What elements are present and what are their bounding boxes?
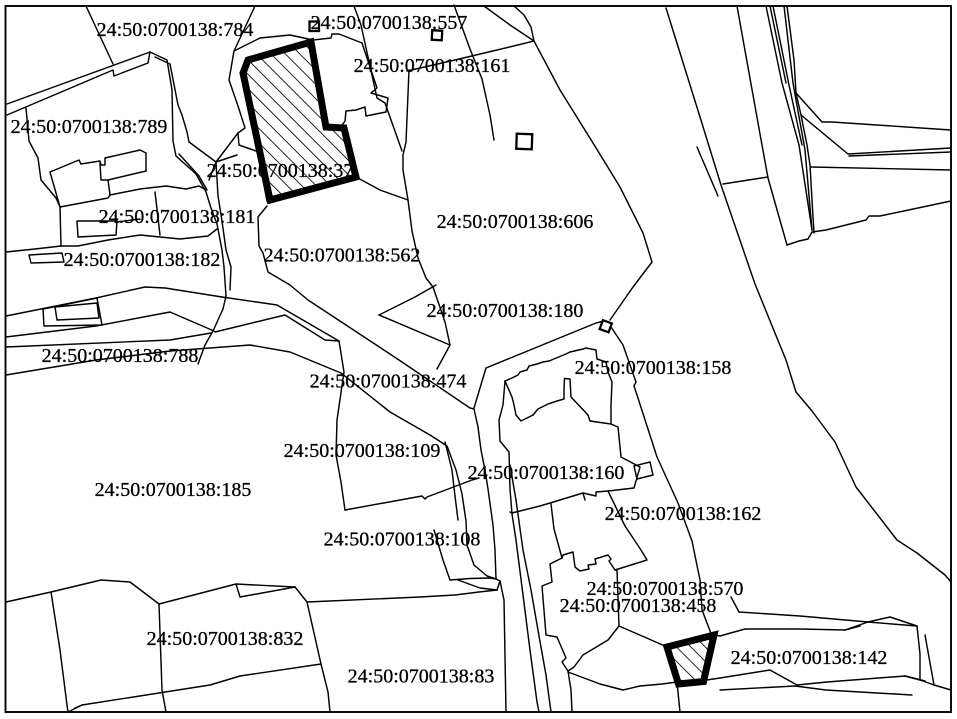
- svg-text:24:50:0700138:83: 24:50:0700138:83: [348, 666, 495, 688]
- svg-text:24:50:0700138:109: 24:50:0700138:109: [284, 440, 441, 462]
- svg-text:24:50:0700138:108: 24:50:0700138:108: [324, 529, 481, 551]
- svg-text:24:50:0700138:181: 24:50:0700138:181: [99, 206, 256, 228]
- svg-text:24:50:0700138:784: 24:50:0700138:784: [97, 19, 254, 41]
- svg-text:24:50:0700138:162: 24:50:0700138:162: [605, 503, 762, 525]
- svg-text:24:50:0700138:142: 24:50:0700138:142: [731, 647, 888, 669]
- svg-text:24:50:0700138:161: 24:50:0700138:161: [354, 55, 511, 77]
- svg-text:24:50:0700138:557: 24:50:0700138:557: [311, 12, 468, 34]
- svg-text:24:50:0700138:474: 24:50:0700138:474: [310, 371, 467, 393]
- svg-text:24:50:0700138:789: 24:50:0700138:789: [11, 116, 168, 138]
- svg-text:24:50:0700138:788: 24:50:0700138:788: [42, 345, 199, 367]
- svg-text:24:50:0700138:160: 24:50:0700138:160: [468, 462, 625, 484]
- svg-text:24:50:0700138:37: 24:50:0700138:37: [207, 160, 354, 182]
- svg-text:24:50:0700138:606: 24:50:0700138:606: [437, 211, 594, 233]
- svg-text:24:50:0700138:562: 24:50:0700138:562: [264, 245, 421, 267]
- svg-text:24:50:0700138:832: 24:50:0700138:832: [147, 628, 304, 650]
- svg-text:24:50:0700138:182: 24:50:0700138:182: [64, 249, 221, 271]
- svg-text:24:50:0700138:185: 24:50:0700138:185: [95, 479, 252, 501]
- svg-text:24:50:0700138:158: 24:50:0700138:158: [575, 357, 732, 379]
- svg-text:24:50:0700138:180: 24:50:0700138:180: [427, 300, 584, 322]
- svg-text:24:50:0700138:458: 24:50:0700138:458: [560, 595, 717, 617]
